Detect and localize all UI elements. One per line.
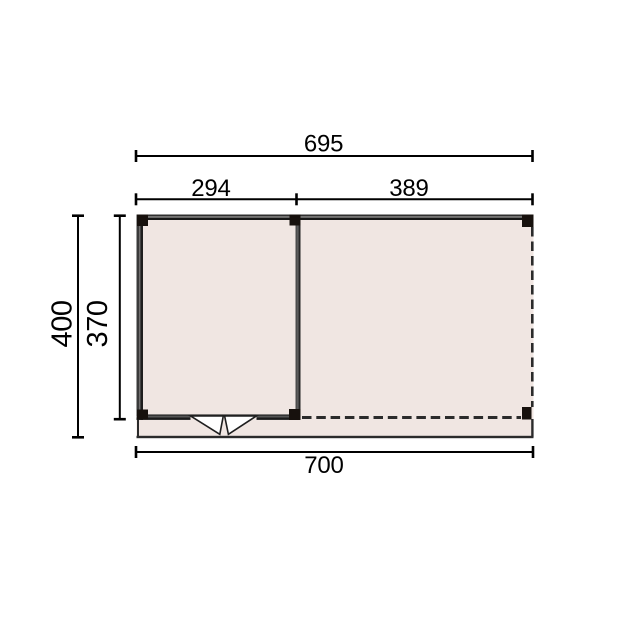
svg-text:700: 700	[304, 452, 343, 479]
svg-text:695: 695	[304, 131, 343, 158]
svg-text:294: 294	[191, 175, 230, 202]
svg-text:370: 370	[82, 301, 114, 348]
svg-text:389: 389	[389, 175, 428, 202]
svg-text:400: 400	[47, 301, 79, 348]
